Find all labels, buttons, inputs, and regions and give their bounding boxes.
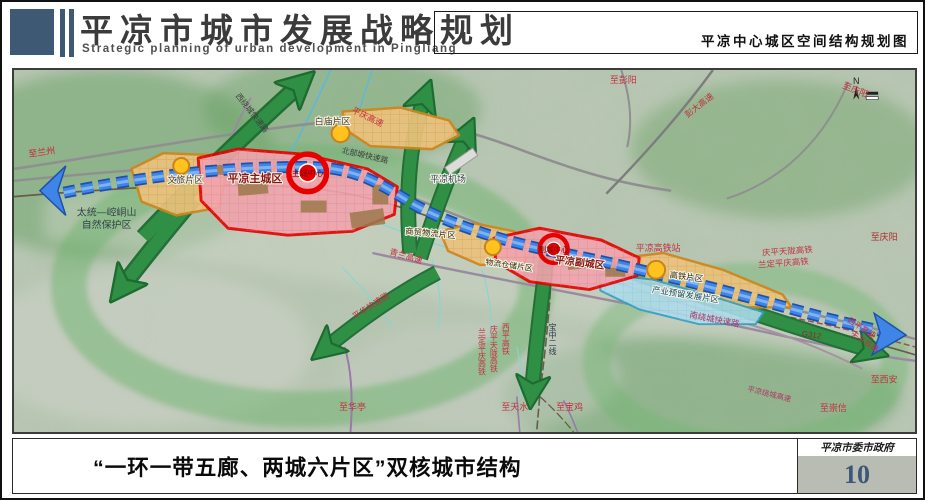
header-frame: 平凉中心城区空间结构规划图 xyxy=(434,11,918,54)
map-canvas: N 至兰州 太统—崆峒山 自然保护区 文旅片区 平凉主城区 主城中心 西绕城快速… xyxy=(14,70,915,432)
label-landing-pingqing-hsr-v: 兰定平庆高铁 xyxy=(477,327,486,376)
label-to-baoji: 至宝鸡 xyxy=(556,401,583,412)
label-to-pengyang: 至彭阳 xyxy=(610,74,637,85)
header-accent-bar xyxy=(60,9,65,57)
label-main-city: 平凉主城区 xyxy=(228,171,283,185)
label-to-tianshui: 至天水 xyxy=(501,401,528,412)
label-to-qingyang-e: 至庆阳 xyxy=(871,231,898,242)
label-baimiao-district: 白庙片区 xyxy=(315,115,351,126)
slide: 平凉市城市发展战略规划 Strategic planning of urban … xyxy=(0,0,925,500)
page-subtitle-en: Strategic planning of urban development … xyxy=(82,43,457,55)
label-xiping-hsr: 西平高铁 xyxy=(501,323,510,356)
structure-caption: “一环一带五廊、两城六片区”双核城市结构 xyxy=(93,451,522,482)
label-qingping-tianlong-hsr-v: 庆平天陇高铁 xyxy=(489,324,498,373)
page-box: 平凉市委市政府 10 xyxy=(797,439,916,493)
label-baozhong-line2: 宝中二线 xyxy=(548,322,557,355)
footer: “一环一带五廊、两城六片区”双核城市结构 平凉市委市政府 10 xyxy=(12,438,917,494)
scale-bar xyxy=(866,97,878,100)
map-caption: 平凉中心城区空间结构规划图 xyxy=(701,30,909,50)
label-to-xian: 至西安 xyxy=(871,374,898,385)
label-hsr-station: 平凉高铁站 xyxy=(636,242,681,253)
label-wenlv-district: 文旅片区 xyxy=(167,174,203,185)
label-sub-city-center: 副城中心 xyxy=(539,244,569,254)
label-to-chongxin: 至崇信 xyxy=(820,402,847,413)
label-to-huating: 至华亭 xyxy=(339,401,366,412)
label-main-city-center: 主城中心 xyxy=(292,168,324,178)
logo-square xyxy=(10,9,54,55)
header-accent-bar xyxy=(69,9,74,57)
page-number: 10 xyxy=(798,456,916,493)
label-airport: 平凉机场 xyxy=(430,173,466,184)
agency-label: 平凉市委市政府 xyxy=(798,439,916,456)
label-nature-reserve: 太统—崆峒山 xyxy=(77,205,137,218)
planning-map: N 至兰州 太统—崆峒山 自然保护区 文旅片区 平凉主城区 主城中心 西绕城快速… xyxy=(12,68,917,434)
header: 平凉市城市发展战略规划 Strategic planning of urban … xyxy=(2,2,923,66)
label-nature-reserve: 自然保护区 xyxy=(82,218,132,231)
